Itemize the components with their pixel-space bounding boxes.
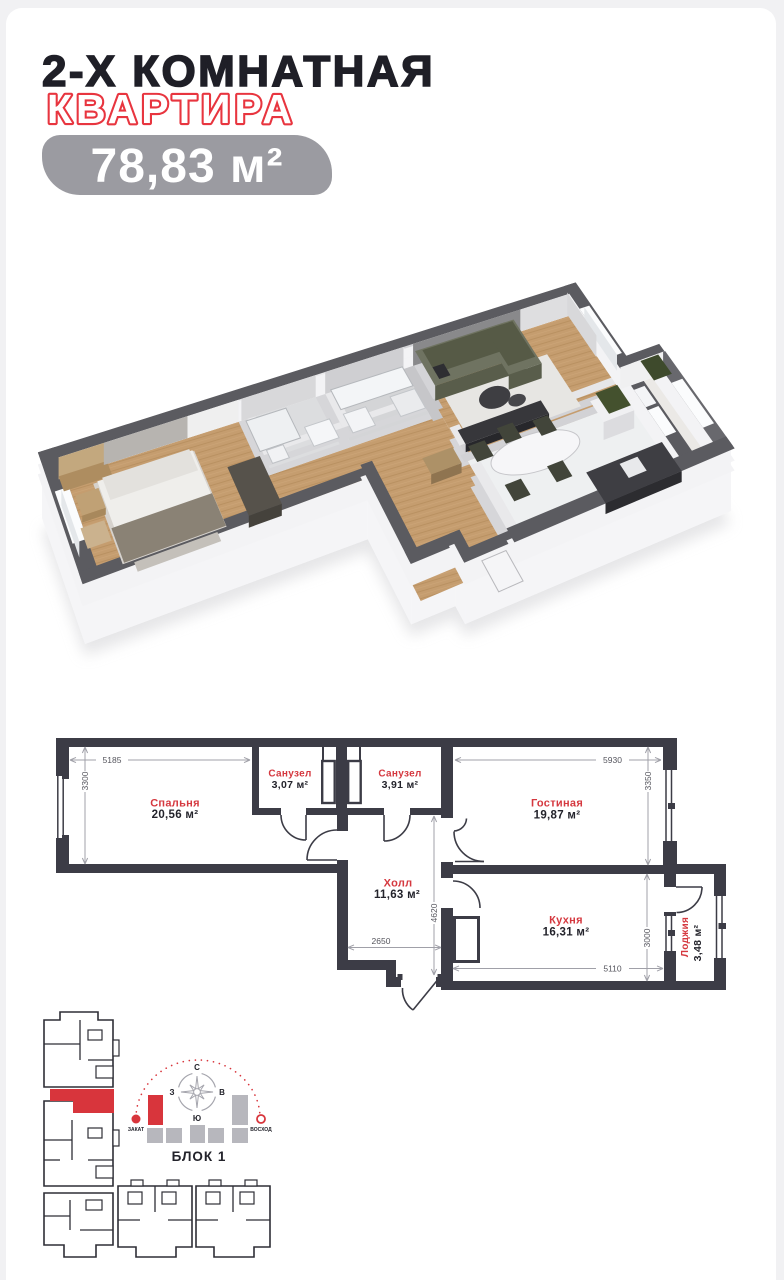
svg-text:16,31 м²: 16,31 м² <box>543 927 590 939</box>
svg-text:5110: 5110 <box>603 964 622 974</box>
svg-text:Санузел: Санузел <box>268 769 311 780</box>
svg-text:Санузел: Санузел <box>378 769 421 780</box>
svg-text:4620: 4620 <box>429 903 439 922</box>
svg-text:20,56 м²: 20,56 м² <box>152 809 199 821</box>
svg-text:5930: 5930 <box>603 755 622 765</box>
svg-text:Спальня: Спальня <box>150 798 200 810</box>
svg-text:С: С <box>194 1063 200 1072</box>
svg-text:Ю: Ю <box>193 1114 201 1123</box>
svg-text:ЗАКАТ: ЗАКАТ <box>128 1127 144 1133</box>
svg-text:Кухня: Кухня <box>549 915 583 927</box>
svg-text:3000: 3000 <box>642 928 652 947</box>
svg-text:БЛОК 1: БЛОК 1 <box>172 1149 227 1164</box>
svg-text:19,87 м²: 19,87 м² <box>534 810 581 822</box>
svg-text:3,48 м²: 3,48 м² <box>692 924 704 961</box>
svg-text:З: З <box>169 1088 174 1097</box>
svg-text:3,07 м²: 3,07 м² <box>272 779 309 791</box>
svg-text:3350: 3350 <box>643 771 653 790</box>
svg-text:3300: 3300 <box>80 771 90 790</box>
svg-text:2650: 2650 <box>372 936 391 946</box>
svg-text:Гостиная: Гостиная <box>531 798 583 810</box>
svg-text:Лоджия: Лоджия <box>680 917 691 957</box>
svg-text:КВАРТИРА: КВАРТИРА <box>47 86 296 132</box>
svg-text:Холл: Холл <box>384 878 413 890</box>
svg-text:ВОСХОД: ВОСХОД <box>250 1127 272 1133</box>
svg-text:3,91 м²: 3,91 м² <box>382 779 419 791</box>
svg-text:11,63 м²: 11,63 м² <box>374 889 420 901</box>
svg-text:5185: 5185 <box>103 755 122 765</box>
svg-text:В: В <box>219 1088 225 1097</box>
